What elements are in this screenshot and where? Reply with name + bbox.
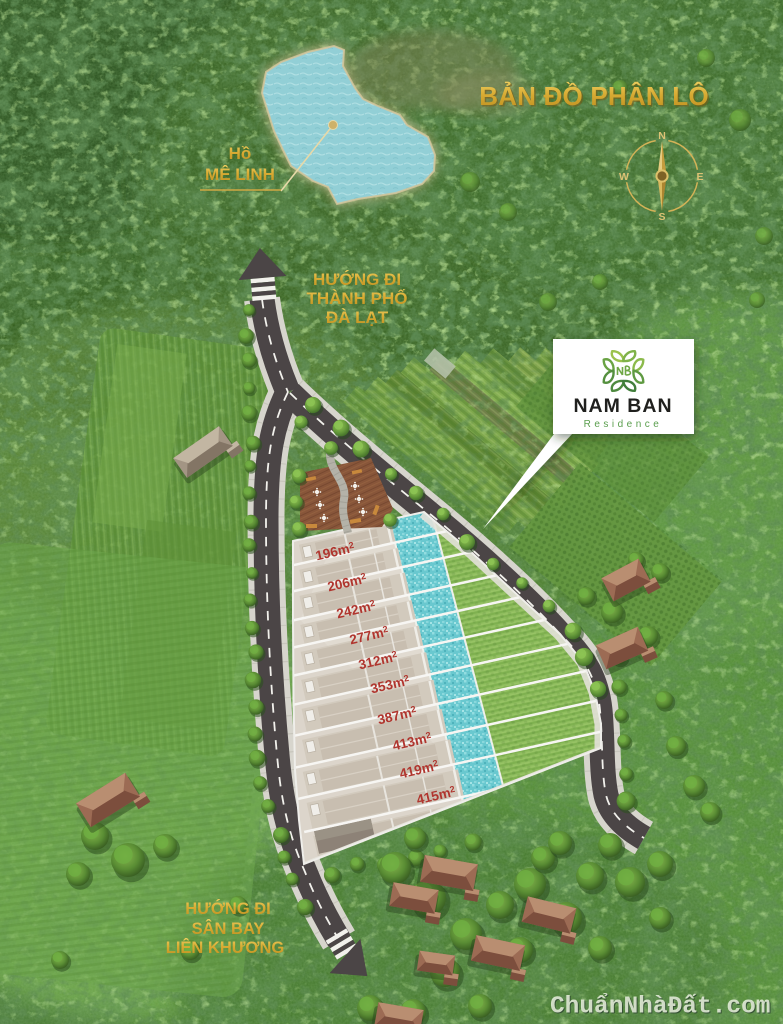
svg-text:Residence: Residence [584, 419, 663, 430]
svg-text:W: W [619, 171, 629, 183]
svg-text:SÂN BAY: SÂN BAY [192, 919, 265, 938]
svg-text:E: E [696, 171, 703, 183]
svg-text:N: N [658, 130, 666, 142]
svg-text:MÊ LINH: MÊ LINH [205, 165, 275, 184]
svg-text:ChuẩnNhàĐất.com: ChuẩnNhàĐất.com [550, 993, 771, 1021]
svg-text:LIÊN KHƯƠNG: LIÊN KHƯƠNG [166, 938, 285, 957]
svg-text:Hồ: Hồ [229, 144, 252, 163]
svg-text:S: S [658, 211, 665, 223]
svg-text:NAM BAN: NAM BAN [573, 395, 672, 417]
svg-text:HƯỚNG ĐI: HƯỚNG ĐI [313, 270, 401, 289]
svg-text:ĐÀ LẠT: ĐÀ LẠT [326, 308, 389, 327]
svg-text:BẢN ĐỒ PHÂN LÔ: BẢN ĐỒ PHÂN LÔ [479, 81, 709, 111]
svg-text:HƯỚNG ĐI: HƯỚNG ĐI [185, 899, 271, 918]
svg-text:THÀNH PHỐ: THÀNH PHỐ [306, 288, 407, 308]
